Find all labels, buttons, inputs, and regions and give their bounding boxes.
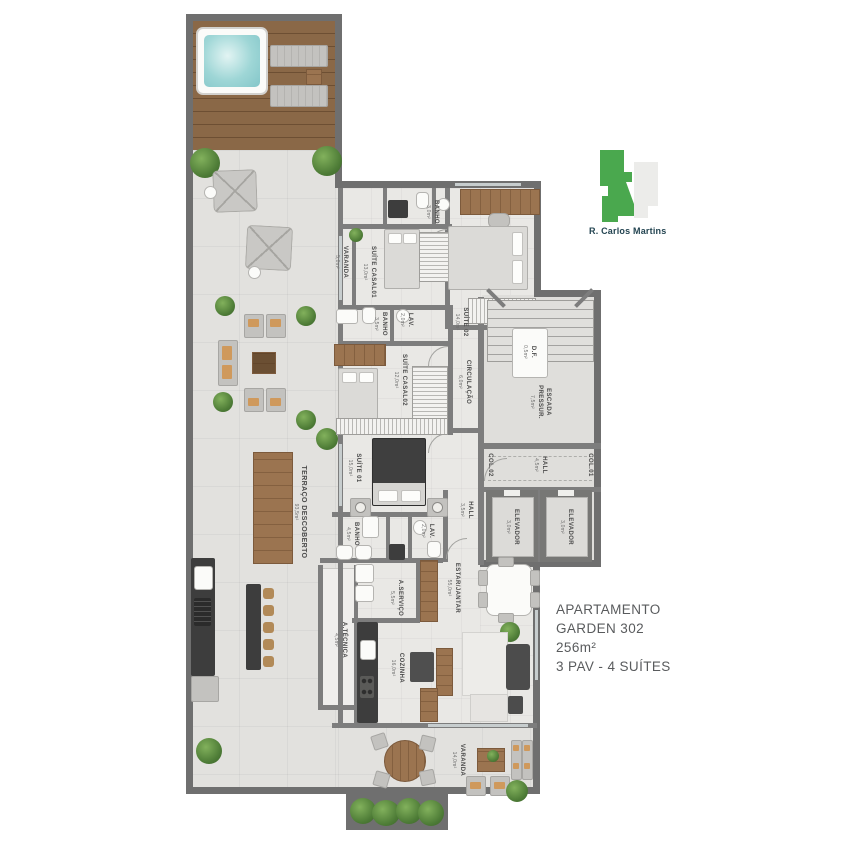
bar-stool bbox=[263, 588, 274, 599]
room-label-estar-jantar: ESTAR/JANTAR55,0m² bbox=[446, 563, 460, 613]
room-area: 2,0m² bbox=[420, 524, 427, 538]
hot-tub-water bbox=[204, 35, 260, 87]
room-label-suite-casal01: SUÍTE CASAL0113,0m² bbox=[362, 246, 376, 298]
wall-bottom bbox=[186, 787, 540, 794]
bar-island bbox=[246, 584, 261, 670]
sun-lounger bbox=[270, 85, 328, 107]
room-label-suite01: SUÍTE 0115,0m² bbox=[347, 453, 361, 482]
coffee-table bbox=[420, 688, 438, 722]
room-label-cozinha: COZINHA16,0m² bbox=[390, 653, 404, 683]
elevator-door bbox=[558, 490, 574, 496]
room-label-elevador2: ELEVADOR3,0m² bbox=[559, 509, 573, 545]
plant bbox=[196, 738, 222, 764]
round-table bbox=[204, 186, 217, 199]
parasol bbox=[212, 169, 257, 213]
room-name: TERRAÇO DESCOBERTO bbox=[299, 465, 308, 558]
room-label-elevador1: ELEVADOR3,0m² bbox=[505, 509, 519, 545]
unit-info-line3: 256m² bbox=[556, 638, 671, 657]
room-area: 4,5m² bbox=[533, 456, 540, 474]
wall-tecnica-bottom bbox=[318, 705, 358, 710]
room-name: D.F. bbox=[528, 345, 536, 359]
room-name: LAV. bbox=[405, 313, 413, 327]
room-name: LAV. bbox=[426, 524, 434, 538]
plant bbox=[316, 428, 338, 450]
room-name: A.SERVIÇO bbox=[395, 580, 403, 617]
lounger bbox=[511, 740, 522, 780]
window-suite02 bbox=[455, 183, 521, 186]
parasol bbox=[245, 225, 293, 271]
room-label-col01: COL.01 bbox=[585, 453, 593, 476]
room-name: SUÍTE 02 bbox=[460, 307, 468, 336]
rug bbox=[470, 694, 508, 722]
desk-suite02 bbox=[460, 189, 540, 215]
wall-stair-right bbox=[594, 290, 601, 567]
room-label-hall-intimo: HALL3,5m² bbox=[459, 501, 473, 519]
chair bbox=[419, 769, 437, 787]
wall-banho-lav-divider bbox=[390, 305, 394, 343]
room-name: HALL bbox=[539, 456, 547, 474]
room-name: PRESSUR. bbox=[535, 385, 543, 419]
plant bbox=[349, 228, 363, 242]
room-name: A.TÉCNICA bbox=[339, 622, 347, 658]
wardrobe bbox=[336, 418, 448, 435]
window-suite01 bbox=[339, 444, 342, 506]
dining-chair bbox=[530, 592, 540, 608]
sun-lounger bbox=[270, 45, 328, 67]
room-name: ESTAR/JANTAR bbox=[452, 563, 460, 613]
neighbor-building-shape bbox=[634, 162, 658, 218]
room-label-banho-top: BANHO3,0m² bbox=[425, 200, 439, 224]
room-label-lav-mid: LAV.2,0m² bbox=[399, 313, 413, 327]
vanity-counter bbox=[336, 309, 358, 324]
outdoor-sink bbox=[194, 566, 213, 590]
room-label-banho-mid: BANHO3,5m² bbox=[373, 312, 387, 336]
outdoor-sofa bbox=[218, 340, 238, 386]
bed-suite01 bbox=[372, 438, 426, 506]
lamp bbox=[355, 502, 366, 513]
unit-info-line1: APARTAMENTO bbox=[556, 600, 671, 619]
highlighted-building-shape bbox=[600, 150, 634, 222]
coffee-table bbox=[252, 352, 276, 374]
bed-suite-casal01 bbox=[384, 229, 420, 289]
guide-line bbox=[488, 480, 592, 481]
bar-stool bbox=[263, 622, 274, 633]
room-label-escada: ESCADAPRESSUR.7,5m² bbox=[529, 385, 551, 419]
bbq-cabinet bbox=[191, 676, 219, 702]
plant bbox=[312, 146, 342, 176]
room-label-banho-suite01: BANHO4,5m² bbox=[345, 522, 359, 546]
armchair bbox=[266, 388, 286, 412]
room-name: CIRCULAÇÃO bbox=[463, 360, 471, 404]
wall-core-left bbox=[478, 297, 484, 565]
hot-tub bbox=[196, 27, 268, 95]
room-name: COL.02 bbox=[485, 453, 493, 476]
room-name: COL.01 bbox=[585, 453, 593, 476]
washing-machine bbox=[355, 564, 374, 583]
toilet bbox=[427, 541, 441, 558]
room-label-df: D.F.0,5m² bbox=[522, 345, 536, 359]
plant bbox=[487, 750, 499, 762]
wall-closet-divider bbox=[383, 188, 387, 226]
room-name: COZINHA bbox=[396, 653, 404, 683]
kitchen-counter bbox=[357, 622, 378, 723]
bed-suite02 bbox=[448, 226, 528, 290]
window-living bbox=[535, 610, 538, 680]
cooktop bbox=[360, 676, 374, 698]
wall-shower-lav-divider bbox=[408, 512, 412, 560]
lounge-chair bbox=[508, 696, 523, 714]
kitchen-table bbox=[436, 648, 453, 696]
room-name: VARANDA bbox=[457, 744, 465, 776]
unit-info-block: APARTAMENTO GARDEN 302 256m² 3 PAV - 4 S… bbox=[556, 600, 671, 676]
shower-box bbox=[389, 544, 405, 560]
planter-box bbox=[346, 794, 448, 830]
room-label-col02: COL.02 bbox=[485, 453, 493, 476]
floor-plan-canvas: TERRAÇO DESCOBERTO93,5m² VARANDA5,0m² SU… bbox=[0, 0, 844, 844]
wall-hall-social-top bbox=[480, 443, 601, 449]
plant bbox=[506, 780, 528, 802]
armchair bbox=[466, 776, 486, 796]
dining-chair bbox=[478, 570, 488, 586]
room-label-varanda-top: VARANDA5,0m² bbox=[334, 246, 348, 278]
plant bbox=[296, 306, 316, 326]
wardrobe bbox=[412, 366, 448, 424]
room-name: BANHO bbox=[379, 312, 387, 336]
unit-info-line2: GARDEN 302 bbox=[556, 619, 671, 638]
room-label-suite02: SUÍTE 0214,0m² bbox=[454, 307, 468, 336]
armchair bbox=[244, 388, 264, 412]
laundry-tank bbox=[355, 585, 374, 602]
room-area: 3,5m² bbox=[459, 501, 466, 519]
room-area: 93,5m² bbox=[292, 465, 299, 558]
room-label-suite-casal02: SUÍTE CASAL0212,0m² bbox=[393, 354, 407, 406]
elevator-door bbox=[504, 490, 520, 496]
room-label-lav-low: LAV.2,0m² bbox=[420, 524, 434, 538]
bar-stool bbox=[263, 605, 274, 616]
wall-deck-top bbox=[186, 14, 342, 21]
room-label-varanda-bottom: VARANDA14,0m² bbox=[451, 744, 465, 776]
dining-chair bbox=[530, 570, 540, 586]
bar-stool bbox=[263, 639, 274, 650]
dining-table bbox=[486, 564, 532, 616]
plant bbox=[296, 410, 316, 430]
unit-info-line4: 3 PAV - 4 SUÍTES bbox=[556, 657, 671, 676]
room-label-a-tecnica: A.TÉCNICA4,5m² bbox=[333, 622, 347, 658]
washbasin bbox=[362, 516, 379, 538]
room-area: 0,5m² bbox=[522, 345, 529, 359]
kitchen-sink bbox=[360, 640, 376, 660]
armchair bbox=[266, 314, 286, 338]
room-label-a-servico: A.SERVIÇO5,5m² bbox=[389, 580, 403, 617]
room-name: VARANDA bbox=[340, 246, 348, 278]
outdoor-dining-table bbox=[253, 452, 293, 564]
wardrobe bbox=[419, 232, 449, 282]
bar-stool bbox=[263, 656, 274, 667]
room-area: 2,0m² bbox=[399, 313, 406, 327]
plant bbox=[215, 296, 235, 316]
room-name: BANHO bbox=[431, 200, 439, 224]
room-name: ELEVADOR bbox=[511, 509, 519, 545]
room-name: SUÍTE CASAL02 bbox=[399, 354, 407, 406]
plant bbox=[213, 392, 233, 412]
desk-suite-casal02 bbox=[334, 344, 386, 366]
sofa bbox=[506, 644, 530, 690]
grill bbox=[194, 598, 211, 626]
toilet bbox=[336, 545, 353, 560]
dining-chair bbox=[478, 592, 488, 608]
street-label: R. Carlos Martins bbox=[589, 226, 679, 236]
armchair bbox=[244, 314, 264, 338]
round-table bbox=[248, 266, 261, 279]
room-name: HALL bbox=[465, 501, 473, 519]
room-label-hall-social: HALL4,5m² bbox=[533, 456, 547, 474]
wall-tecnica-left bbox=[318, 565, 323, 710]
lounger bbox=[522, 740, 533, 780]
rug bbox=[462, 632, 508, 696]
room-label-terraco: TERRAÇO DESCOBERTO93,5m² bbox=[292, 465, 308, 558]
room-name: SUÍTE 01 bbox=[353, 453, 361, 482]
shower-box bbox=[388, 200, 408, 218]
sliding-door-balcony bbox=[428, 724, 528, 727]
side-table bbox=[306, 69, 322, 85]
room-name: SUÍTE CASAL01 bbox=[368, 246, 376, 298]
bidet bbox=[355, 545, 372, 560]
sideboard bbox=[420, 560, 438, 622]
room-name: ELEVADOR bbox=[565, 509, 573, 545]
location-key-map bbox=[592, 148, 676, 226]
kitchen-island bbox=[410, 652, 434, 682]
room-label-circulacao: CIRCULAÇÃO6,0m² bbox=[457, 360, 471, 404]
lamp bbox=[432, 502, 443, 513]
room-name: ESCADA bbox=[543, 385, 551, 419]
room-name: BANHO bbox=[351, 522, 359, 546]
wall-circulacao-left bbox=[448, 305, 453, 435]
dining-chair bbox=[498, 557, 514, 567]
